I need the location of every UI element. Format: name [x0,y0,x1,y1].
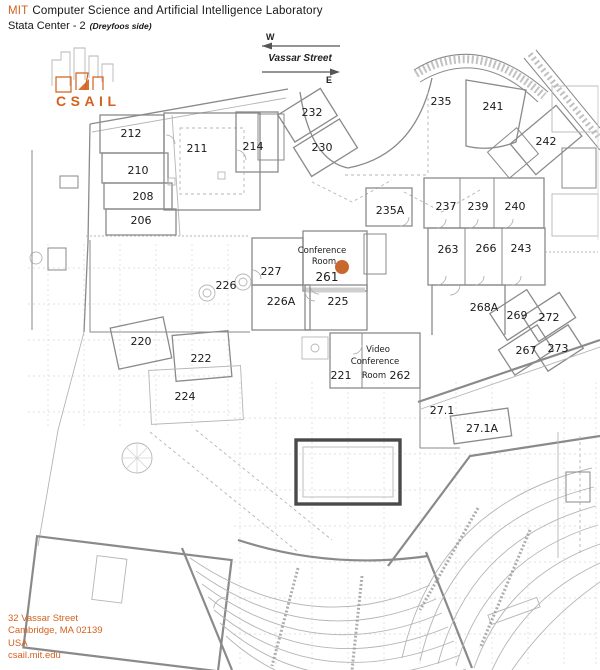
bridge-hatch [530,54,600,139]
room-label-241: 241 [483,100,504,113]
website-text: csail.mit.edu [8,650,103,662]
room-label-272: 272 [539,311,560,324]
room-label-263: 263 [438,243,459,256]
room-label-267: 267 [516,344,537,357]
conference-room-label-line2: Room [312,257,336,267]
floor-plan-map: W Vassar Street E CSAIL [0,0,600,670]
room-label-273: 273 [548,342,569,355]
side-note: (Dreyfoos side) [90,21,152,31]
room-label-242: 242 [536,135,557,148]
page-subtitle: Stata Center - 2(Dreyfoos side) [8,20,323,32]
video-conference-label-line1: Video [366,345,390,355]
address-line-1: 32 Vassar Street [8,613,103,625]
room-label-222: 222 [191,352,212,365]
room-label-262: 262 [390,369,411,382]
room-label-261: 261 [316,270,339,284]
room-label-211: 211 [187,142,208,155]
door-swings [166,135,521,354]
page-title: MITComputer Science and Artificial Intel… [8,5,323,17]
room-label-239: 239 [468,200,489,213]
conference-room-261-marker-dot [335,260,349,274]
room-label-221: 221 [331,369,352,382]
room-label-226: 226 [216,279,237,292]
logo-wordmark: CSAIL [56,93,121,109]
room-label-243: 243 [511,242,532,255]
csail-logo: CSAIL [52,48,121,109]
room-label-266: 266 [476,242,497,255]
room-label-227: 227 [261,265,282,278]
room-label-268A: 268A [470,301,499,314]
room-label-212: 212 [121,127,142,140]
room-label-237: 237 [436,200,457,213]
lower-left-rooms-walls [110,317,332,552]
room-label-235: 235 [431,95,452,108]
video-conference-label-line2: Conference [351,357,400,367]
structural-grid [28,244,598,666]
org-prefix: MIT [8,5,28,17]
street-label: Vassar Street [268,53,332,64]
room-label-206: 206 [131,214,152,227]
angled-office-cluster-walls [418,290,600,409]
room-label-27-1A: 27.1A [466,422,498,435]
conference-room-label-line1: Conference [298,246,347,256]
west-arrowhead-icon [262,43,272,50]
address-line-2: Cambridge, MA 02139 [8,625,103,637]
header: MITComputer Science and Artificial Intel… [8,5,323,32]
logo-building-icon [56,77,71,92]
org-name: Computer Science and Artificial Intellig… [32,5,322,17]
room-label-230: 230 [312,141,333,154]
room-label-269: 269 [507,309,528,322]
compass-east-label: E [326,75,332,85]
room-label-235A: 235A [376,204,405,217]
compass: W Vassar Street E [262,32,340,85]
room-label-220: 220 [131,335,152,348]
footer-address: 32 Vassar Street Cambridge, MA 02139 USA… [8,613,103,662]
room-label-208: 208 [133,190,154,203]
compass-west-label: W [266,32,275,42]
room-label-224: 224 [175,390,196,403]
curved-facade-walls [275,50,600,212]
auditorium-aisle-steps [272,568,362,670]
room-label-210: 210 [128,164,149,177]
room-label-226A: 226A [267,295,296,308]
room-label-225: 225 [328,295,349,308]
room-label-240: 240 [505,200,526,213]
elevator-hatch [48,248,66,270]
video-conference-label-line3: Room [362,371,386,381]
room-label-214: 214 [243,140,264,153]
room-label-232: 232 [302,106,323,119]
room-label-27-1: 27.1 [430,404,455,417]
address-line-3: USA [8,638,103,650]
stairs-hatch [258,114,284,160]
csail-floor-map-page: { "header": { "org_prefix": "MIT", "org_… [0,0,600,670]
building-name: Stata Center - 2 [8,20,86,32]
